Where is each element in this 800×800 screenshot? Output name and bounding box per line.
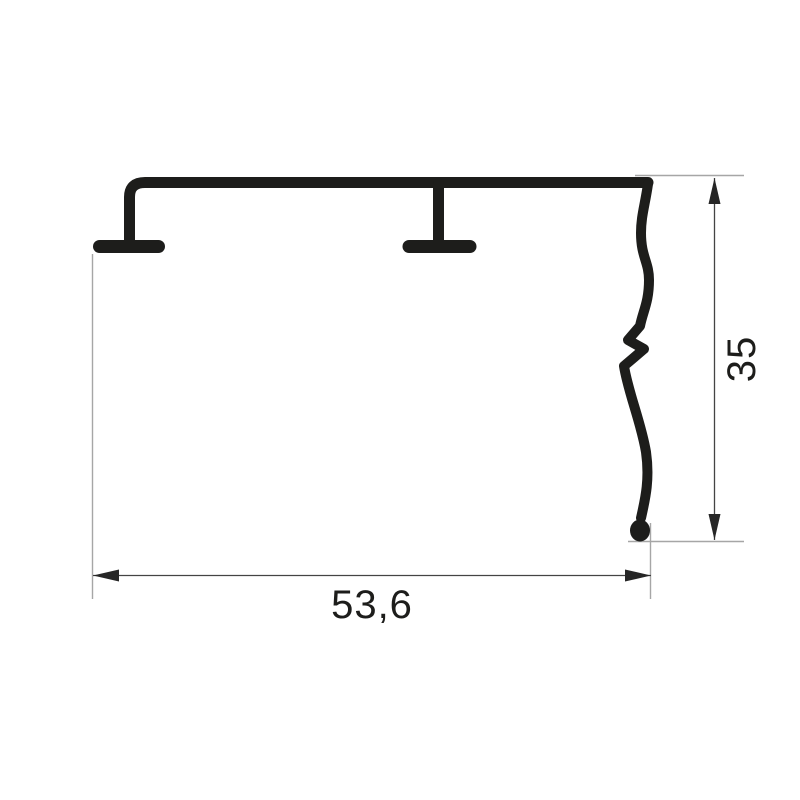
width-arrow-left-icon <box>93 570 119 582</box>
width-dimension-label: 53,6 <box>331 585 413 625</box>
height-arrow-bottom-icon <box>709 514 721 540</box>
profile-bottom-bead <box>630 520 650 542</box>
height-arrow-top-icon <box>709 178 721 204</box>
height-dimension <box>709 178 721 540</box>
profile-outline <box>100 183 651 542</box>
height-dimension-label: 35 <box>722 336 762 383</box>
width-arrow-right-icon <box>625 570 651 582</box>
profile-top-flange <box>130 183 649 244</box>
width-dimension <box>93 570 651 582</box>
profile-right-wavy-edge <box>624 184 649 518</box>
technical-drawing-canvas: 53,6 35 <box>0 0 800 800</box>
profile-cross-section-drawing <box>0 0 800 800</box>
